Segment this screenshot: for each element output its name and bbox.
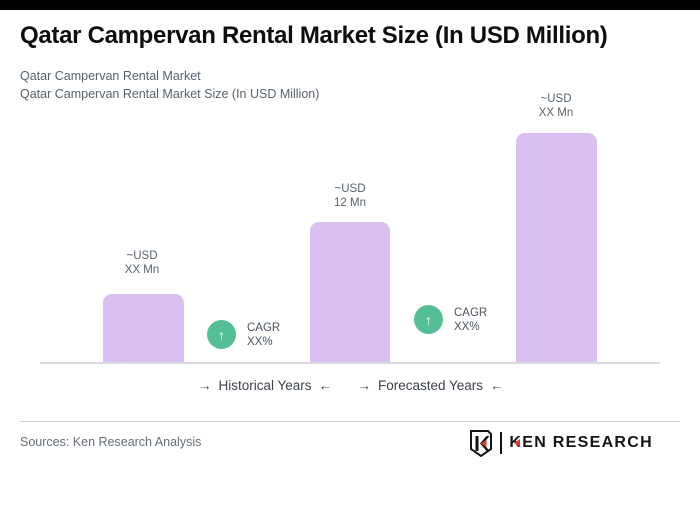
bar-value-line-2: XX Mn <box>496 106 616 120</box>
cagr-up-icon: ↑ <box>414 305 443 334</box>
bar-value-line-2: XX Mn <box>82 263 202 277</box>
brand-red-triangle-icon <box>514 439 520 447</box>
x-axis-line <box>40 362 660 364</box>
ken-research-logo: KEN RESEARCH <box>469 429 653 457</box>
report-slide: Qatar Campervan Rental Market Size (In U… <box>0 0 700 520</box>
bar-value-line-1: ~USD <box>82 249 202 263</box>
ken-research-wordmark: KEN RESEARCH <box>509 434 653 452</box>
brand-letter-k: K <box>509 434 522 452</box>
cagr-value: XX% <box>454 320 487 334</box>
cagr-badge: ↑ CAGR XX% <box>207 320 280 349</box>
forecasted-years-label: Forecasted Years <box>378 378 483 393</box>
left-arrow-icon: ← <box>483 378 511 393</box>
forecasted-years-annotation: →Forecasted Years← <box>338 378 523 396</box>
sources-text: Sources: Ken Research Analysis <box>20 435 201 449</box>
bar-value-label: ~USD XX Mn <box>82 249 202 277</box>
up-arrow-glyph: ↑ <box>425 312 432 328</box>
cagr-label: CAGR <box>454 306 487 320</box>
ken-research-emblem-icon <box>469 430 493 457</box>
bar-value-line-1: ~USD <box>496 92 616 106</box>
logo-divider <box>500 432 502 454</box>
bar-forecast <box>516 133 597 363</box>
cagr-badge-text: CAGR XX% <box>454 306 487 334</box>
bar-value-label: ~USD XX Mn <box>496 92 616 120</box>
left-arrow-icon: ← <box>312 378 340 393</box>
bar-value-line-1: ~USD <box>290 182 410 196</box>
cagr-badge-text: CAGR XX% <box>247 321 280 349</box>
cagr-label: CAGR <box>247 321 280 335</box>
right-arrow-icon: → <box>191 378 219 393</box>
up-arrow-glyph: ↑ <box>218 327 225 343</box>
historical-years-label: Historical Years <box>218 378 311 393</box>
cagr-up-icon: ↑ <box>207 320 236 349</box>
bar-value-line-2: 12 Mn <box>290 196 410 210</box>
brand-rest-text: EN RESEARCH <box>522 434 653 452</box>
right-arrow-icon: → <box>350 378 378 393</box>
historical-years-annotation: →Historical Years← <box>170 378 360 396</box>
bar-value-label: ~USD 12 Mn <box>290 182 410 210</box>
bar-historical <box>103 294 184 363</box>
cagr-value: XX% <box>247 335 280 349</box>
cagr-badge: ↑ CAGR XX% <box>414 305 487 334</box>
footer-divider <box>20 421 680 422</box>
bar-current <box>310 222 390 363</box>
